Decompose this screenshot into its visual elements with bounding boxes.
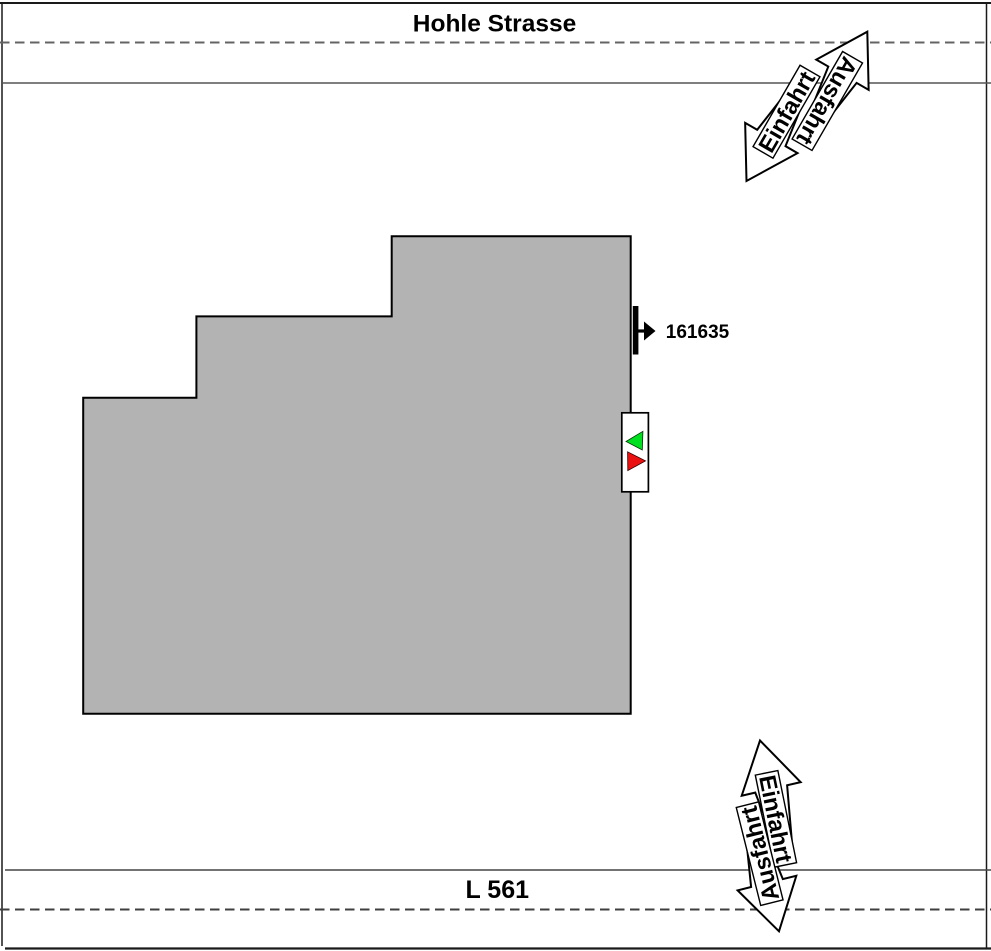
svg-text:Hohle Strasse: Hohle Strasse [413, 11, 576, 38]
svg-text:L 561: L 561 [466, 876, 530, 904]
svg-text:161635: 161635 [666, 322, 730, 343]
